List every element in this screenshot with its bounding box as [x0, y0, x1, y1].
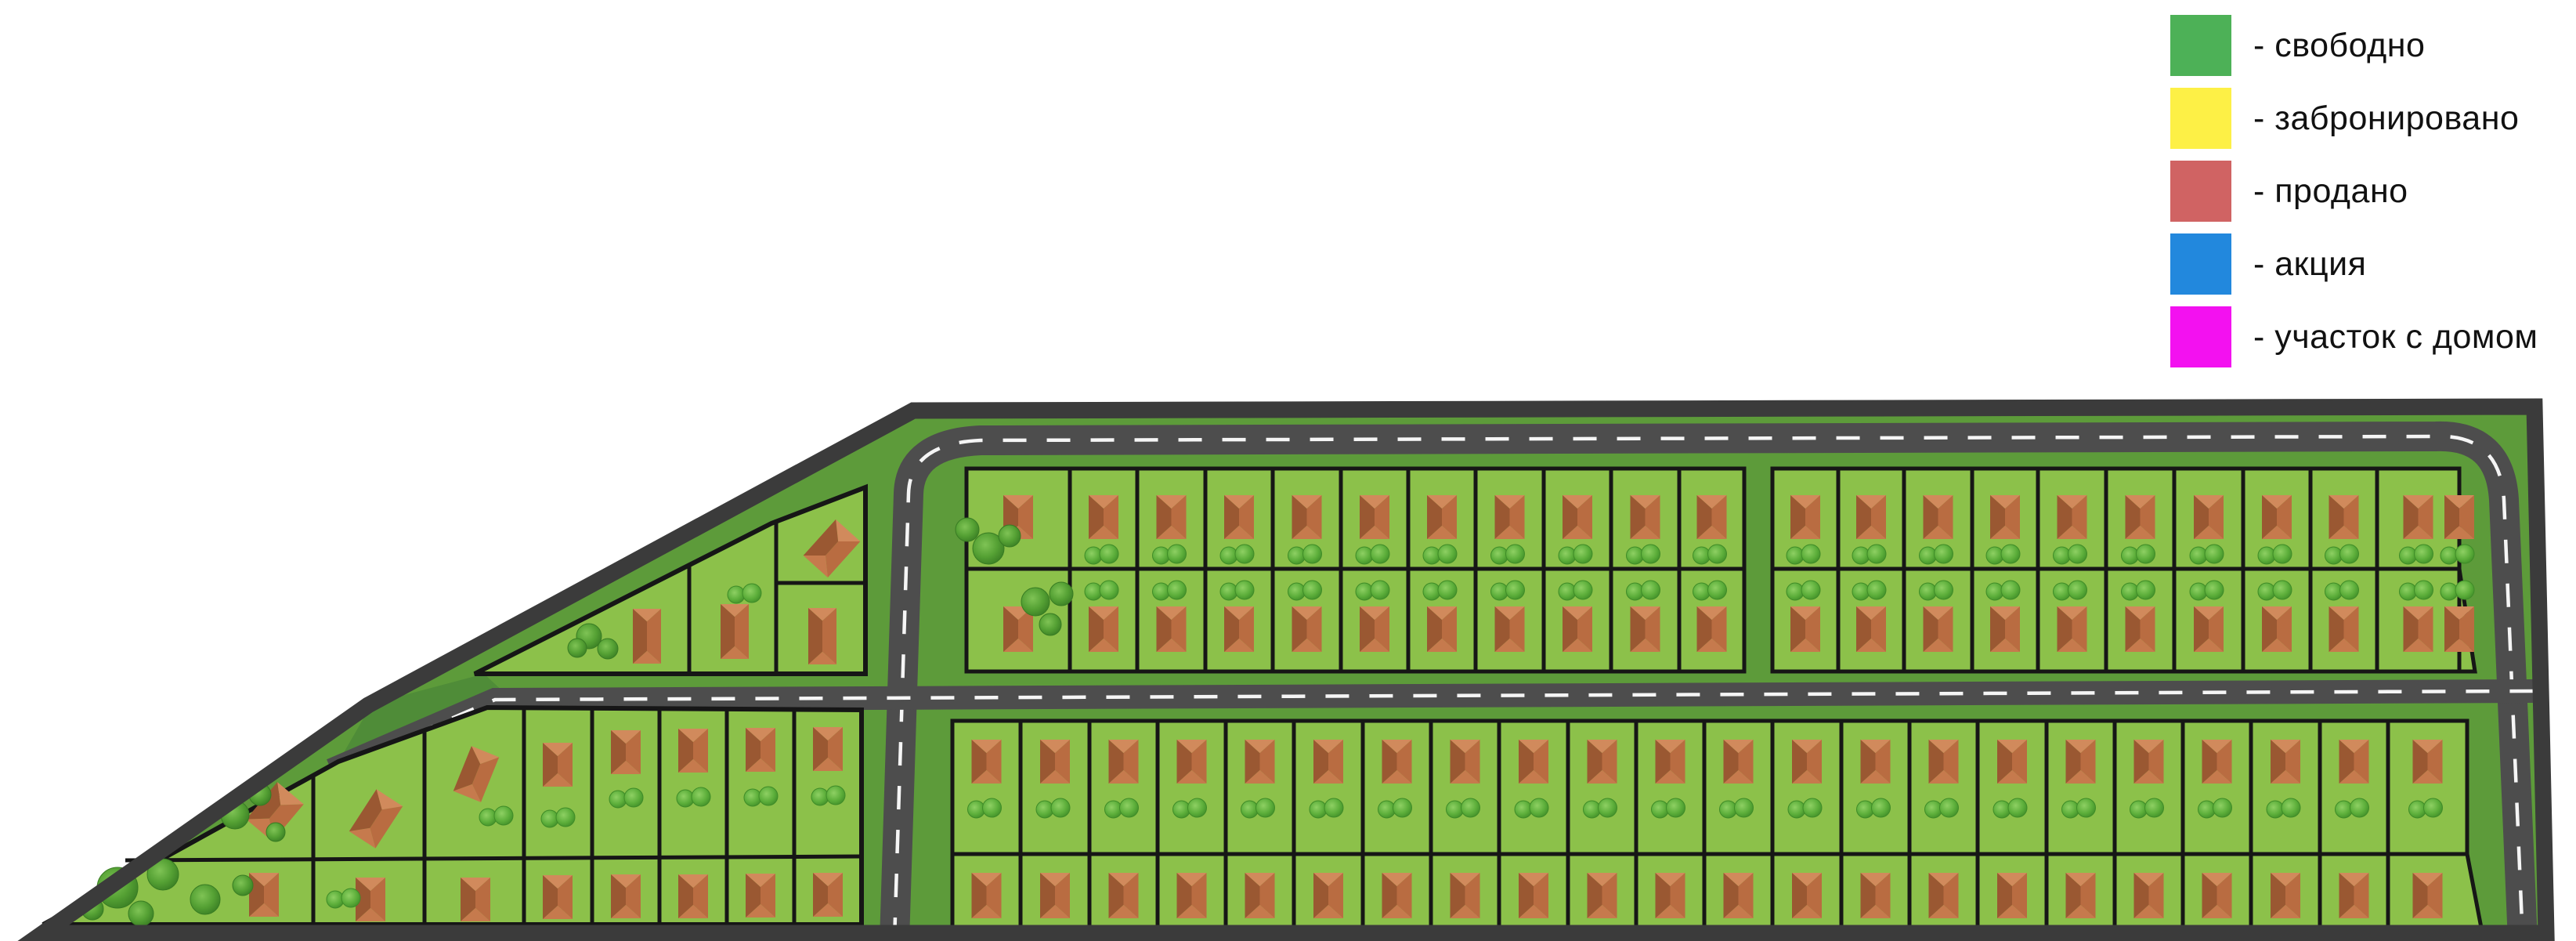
house-icon	[1563, 606, 1592, 652]
house-icon	[1157, 495, 1187, 539]
house-icon	[1177, 873, 1207, 918]
house-icon	[1157, 606, 1187, 652]
house-icon	[2339, 740, 2369, 784]
house-icon	[1924, 606, 1953, 652]
house-icon	[1790, 495, 1820, 539]
house-icon	[2202, 740, 2232, 784]
house-icon	[2058, 606, 2087, 652]
legend-swatch-with-house	[2170, 306, 2231, 367]
south-west-block-plots[interactable]	[43, 708, 862, 925]
house-icon	[2134, 873, 2164, 918]
legend-label: - участок с домом	[2253, 318, 2538, 356]
house-icon	[1990, 495, 2020, 539]
legend-label: - продано	[2253, 172, 2408, 211]
house-icon	[1382, 740, 1412, 784]
house-icon	[721, 604, 749, 659]
house-icon	[1040, 873, 1070, 918]
legend-item-sold: - продано	[2170, 161, 2538, 222]
house-icon	[2202, 873, 2232, 918]
house-icon	[543, 875, 573, 919]
house-icon	[1792, 873, 1822, 918]
house-icon	[2329, 495, 2359, 539]
tree-icon	[1039, 613, 1061, 635]
legend-swatch-reserved	[2170, 88, 2231, 149]
house-icon	[2271, 740, 2300, 784]
house-icon	[1245, 740, 1275, 784]
house-icon	[461, 878, 490, 921]
house-icon	[1360, 495, 1389, 539]
house-icon	[1089, 495, 1118, 539]
house-icon	[1245, 873, 1275, 918]
house-icon	[1224, 606, 1254, 652]
house-icon	[1495, 495, 1525, 539]
house-icon	[1382, 873, 1412, 918]
tree-icon	[568, 639, 587, 657]
house-icon	[2404, 606, 2433, 652]
legend-item-reserved: - забронировано	[2170, 88, 2538, 149]
house-icon	[1313, 740, 1343, 784]
house-icon	[972, 740, 1002, 784]
house-icon	[1451, 873, 1480, 918]
page: - свободно- забронировано- продано- акци…	[0, 0, 2576, 941]
house-icon	[611, 730, 641, 774]
house-icon	[1519, 873, 1548, 918]
legend-swatch-free	[2170, 15, 2231, 76]
house-icon	[2444, 606, 2474, 652]
house-icon	[1997, 873, 2027, 918]
house-icon	[1313, 873, 1343, 918]
house-icon	[633, 609, 661, 664]
legend-label: - свободно	[2253, 27, 2425, 65]
house-icon	[1360, 606, 1389, 652]
house-icon	[746, 874, 775, 917]
house-icon	[2444, 495, 2474, 539]
house-icon	[1656, 873, 1685, 918]
house-icon	[1856, 495, 1886, 539]
house-icon	[972, 873, 1002, 918]
tree-icon	[1021, 588, 1050, 616]
house-icon	[2134, 740, 2164, 784]
house-icon	[1929, 740, 1959, 784]
house-icon	[1924, 495, 1953, 539]
house-icon	[1656, 740, 1685, 784]
tree-icon	[598, 639, 618, 659]
legend-item-with-house: - участок с домом	[2170, 306, 2538, 367]
house-icon	[1856, 606, 1886, 652]
house-icon	[1588, 873, 1617, 918]
house-icon	[1109, 873, 1139, 918]
tree-icon	[266, 823, 285, 841]
house-icon	[1631, 495, 1660, 539]
legend-label: - забронировано	[2253, 100, 2519, 138]
house-icon	[1292, 495, 1322, 539]
house-icon	[1697, 495, 1727, 539]
house-icon	[2404, 495, 2433, 539]
house-icon	[1929, 873, 1959, 918]
house-icon	[2262, 495, 2292, 539]
tree-icon	[956, 518, 979, 541]
house-icon	[611, 874, 641, 918]
house-icon	[1790, 606, 1820, 652]
house-icon	[678, 874, 708, 918]
house-icon	[543, 743, 573, 787]
house-icon	[1588, 740, 1617, 784]
house-icon	[1109, 740, 1139, 784]
house-icon	[1451, 740, 1480, 784]
house-icon	[1040, 740, 1070, 784]
legend-item-promo: - акция	[2170, 233, 2538, 295]
house-icon	[2329, 606, 2359, 652]
house-icon	[1563, 495, 1592, 539]
house-icon	[1177, 740, 1207, 784]
house-icon	[813, 727, 843, 771]
legend-swatch-promo	[2170, 233, 2231, 295]
legend: - свободно- забронировано- продано- акци…	[2170, 15, 2538, 379]
house-icon	[2066, 740, 2096, 784]
house-icon	[2194, 495, 2224, 539]
house-icon	[1990, 606, 2020, 652]
house-icon	[2271, 873, 2300, 918]
tree-icon	[1050, 582, 1073, 606]
house-icon	[2058, 495, 2087, 539]
house-icon	[1724, 873, 1754, 918]
house-icon	[2126, 606, 2155, 652]
house-icon	[808, 608, 836, 664]
legend-swatch-sold	[2170, 161, 2231, 222]
wedge-block-plots[interactable]	[475, 487, 865, 674]
house-icon	[1224, 495, 1254, 539]
house-icon	[2339, 873, 2369, 918]
house-icon	[1631, 606, 1660, 652]
house-icon	[678, 729, 708, 773]
tree-icon	[190, 885, 220, 914]
house-icon	[1495, 606, 1525, 652]
house-icon	[1427, 495, 1457, 539]
house-icon	[1724, 740, 1754, 784]
tree-icon	[233, 875, 253, 896]
house-icon	[2194, 606, 2224, 652]
house-icon	[1792, 740, 1822, 784]
house-icon	[1697, 606, 1727, 652]
house-icon	[1427, 606, 1457, 652]
tree-icon	[999, 525, 1021, 547]
house-icon	[1519, 740, 1548, 784]
house-icon	[1861, 740, 1891, 784]
house-icon	[813, 873, 843, 917]
legend-item-free: - свободно	[2170, 15, 2538, 76]
house-icon	[1997, 740, 2027, 784]
tree-icon	[128, 901, 154, 926]
legend-label: - акция	[2253, 245, 2366, 284]
house-icon	[2126, 495, 2155, 539]
house-icon	[249, 873, 279, 917]
house-icon	[1861, 873, 1891, 918]
house-icon	[746, 728, 775, 772]
house-icon	[2413, 873, 2443, 918]
house-icon	[2262, 606, 2292, 652]
house-icon	[1089, 606, 1118, 652]
house-icon	[2413, 740, 2443, 784]
house-icon	[1292, 606, 1322, 652]
house-icon	[2066, 873, 2096, 918]
